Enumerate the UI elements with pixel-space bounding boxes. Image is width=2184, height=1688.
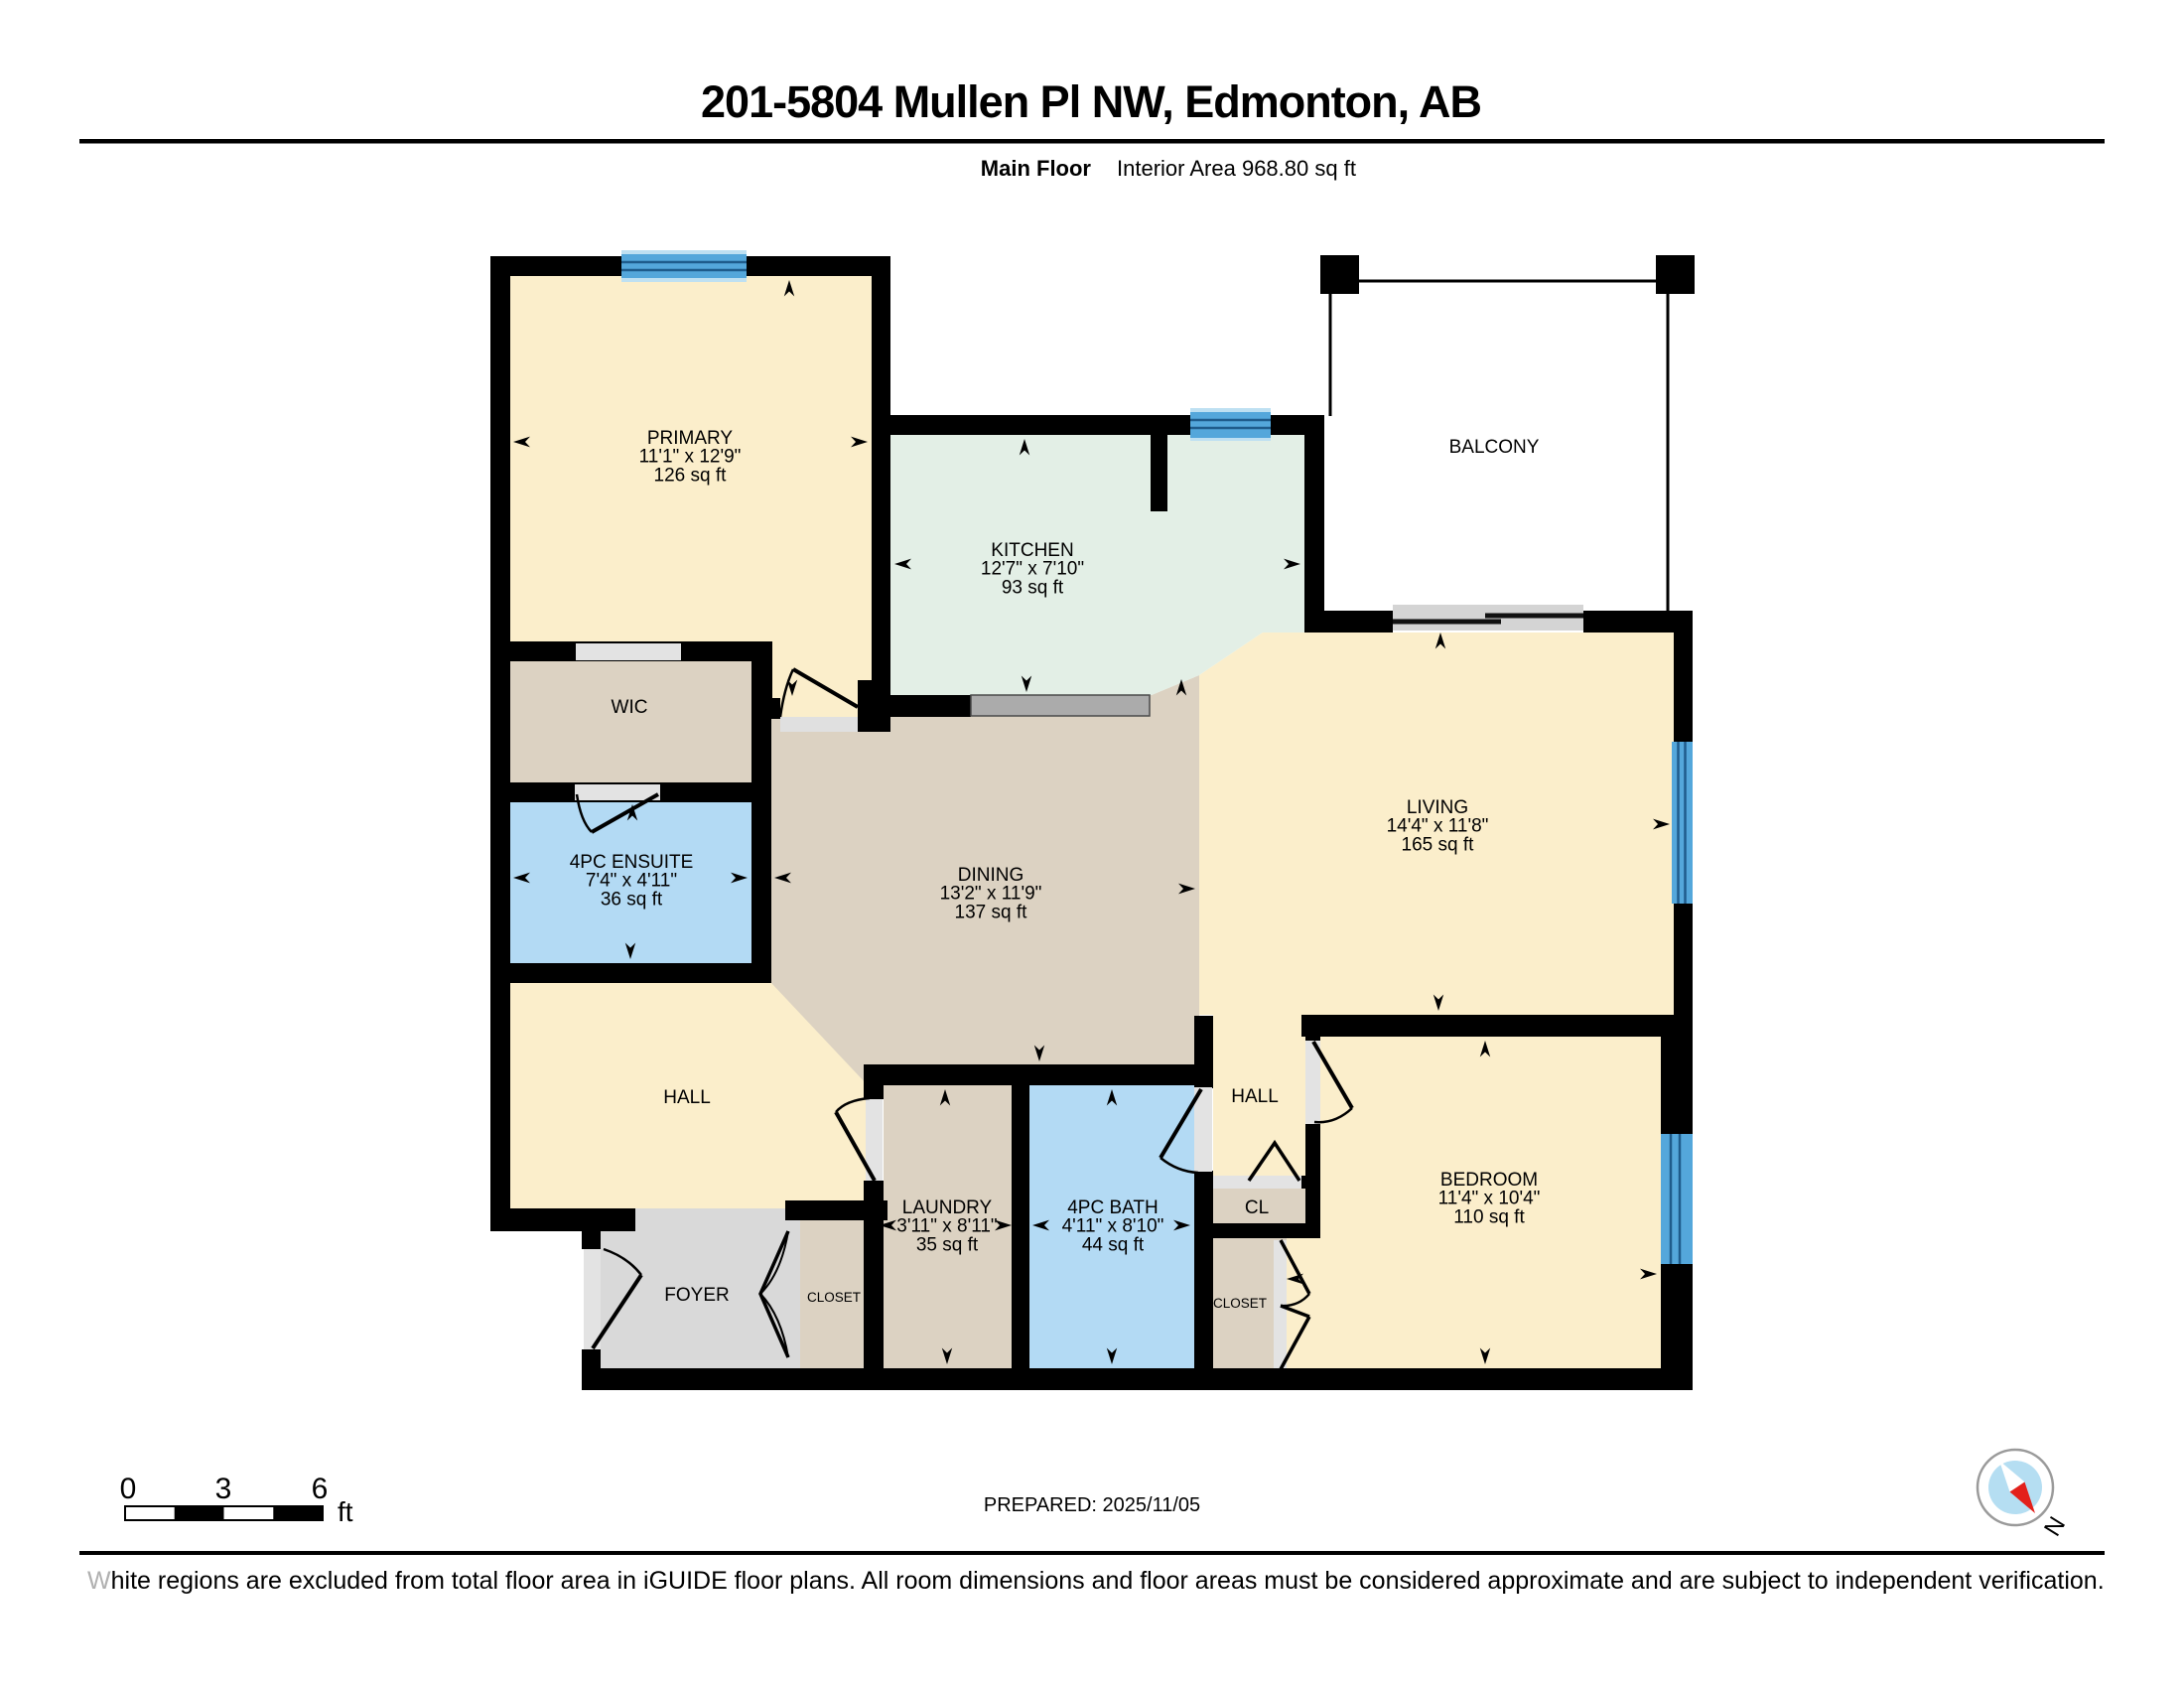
- svg-text:3: 3: [215, 1473, 232, 1505]
- svg-text:0: 0: [120, 1473, 137, 1505]
- svg-text:FOYER: FOYER: [664, 1285, 729, 1306]
- svg-text:ft: ft: [338, 1496, 353, 1527]
- svg-text:HALL: HALL: [1231, 1086, 1279, 1107]
- svg-text:White regions are excluded fro: White regions are excluded from total fl…: [87, 1567, 2105, 1595]
- svg-text:HALL: HALL: [663, 1087, 711, 1108]
- svg-text:Main Floor: Main Floor: [981, 156, 1092, 181]
- svg-text:6: 6: [312, 1473, 329, 1505]
- svg-text:BALCONY: BALCONY: [1449, 437, 1540, 458]
- svg-text:Interior Area 968.80 sq ft: Interior Area 968.80 sq ft: [1117, 156, 1356, 181]
- svg-text:CL: CL: [1245, 1197, 1269, 1218]
- svg-text:CLOSET: CLOSET: [807, 1290, 861, 1305]
- svg-text:WIC: WIC: [612, 697, 648, 718]
- svg-text:201-5804 Mullen Pl NW, Edmonto: 201-5804 Mullen Pl NW, Edmonton, AB: [701, 76, 1481, 127]
- svg-text:CLOSET: CLOSET: [1213, 1296, 1267, 1311]
- svg-text:PRIMARY11'1" x 12'9"126 sq ft: PRIMARY11'1" x 12'9"126 sq ft: [639, 428, 742, 486]
- svg-text:PREPARED: 2025/11/05: PREPARED: 2025/11/05: [984, 1494, 1200, 1516]
